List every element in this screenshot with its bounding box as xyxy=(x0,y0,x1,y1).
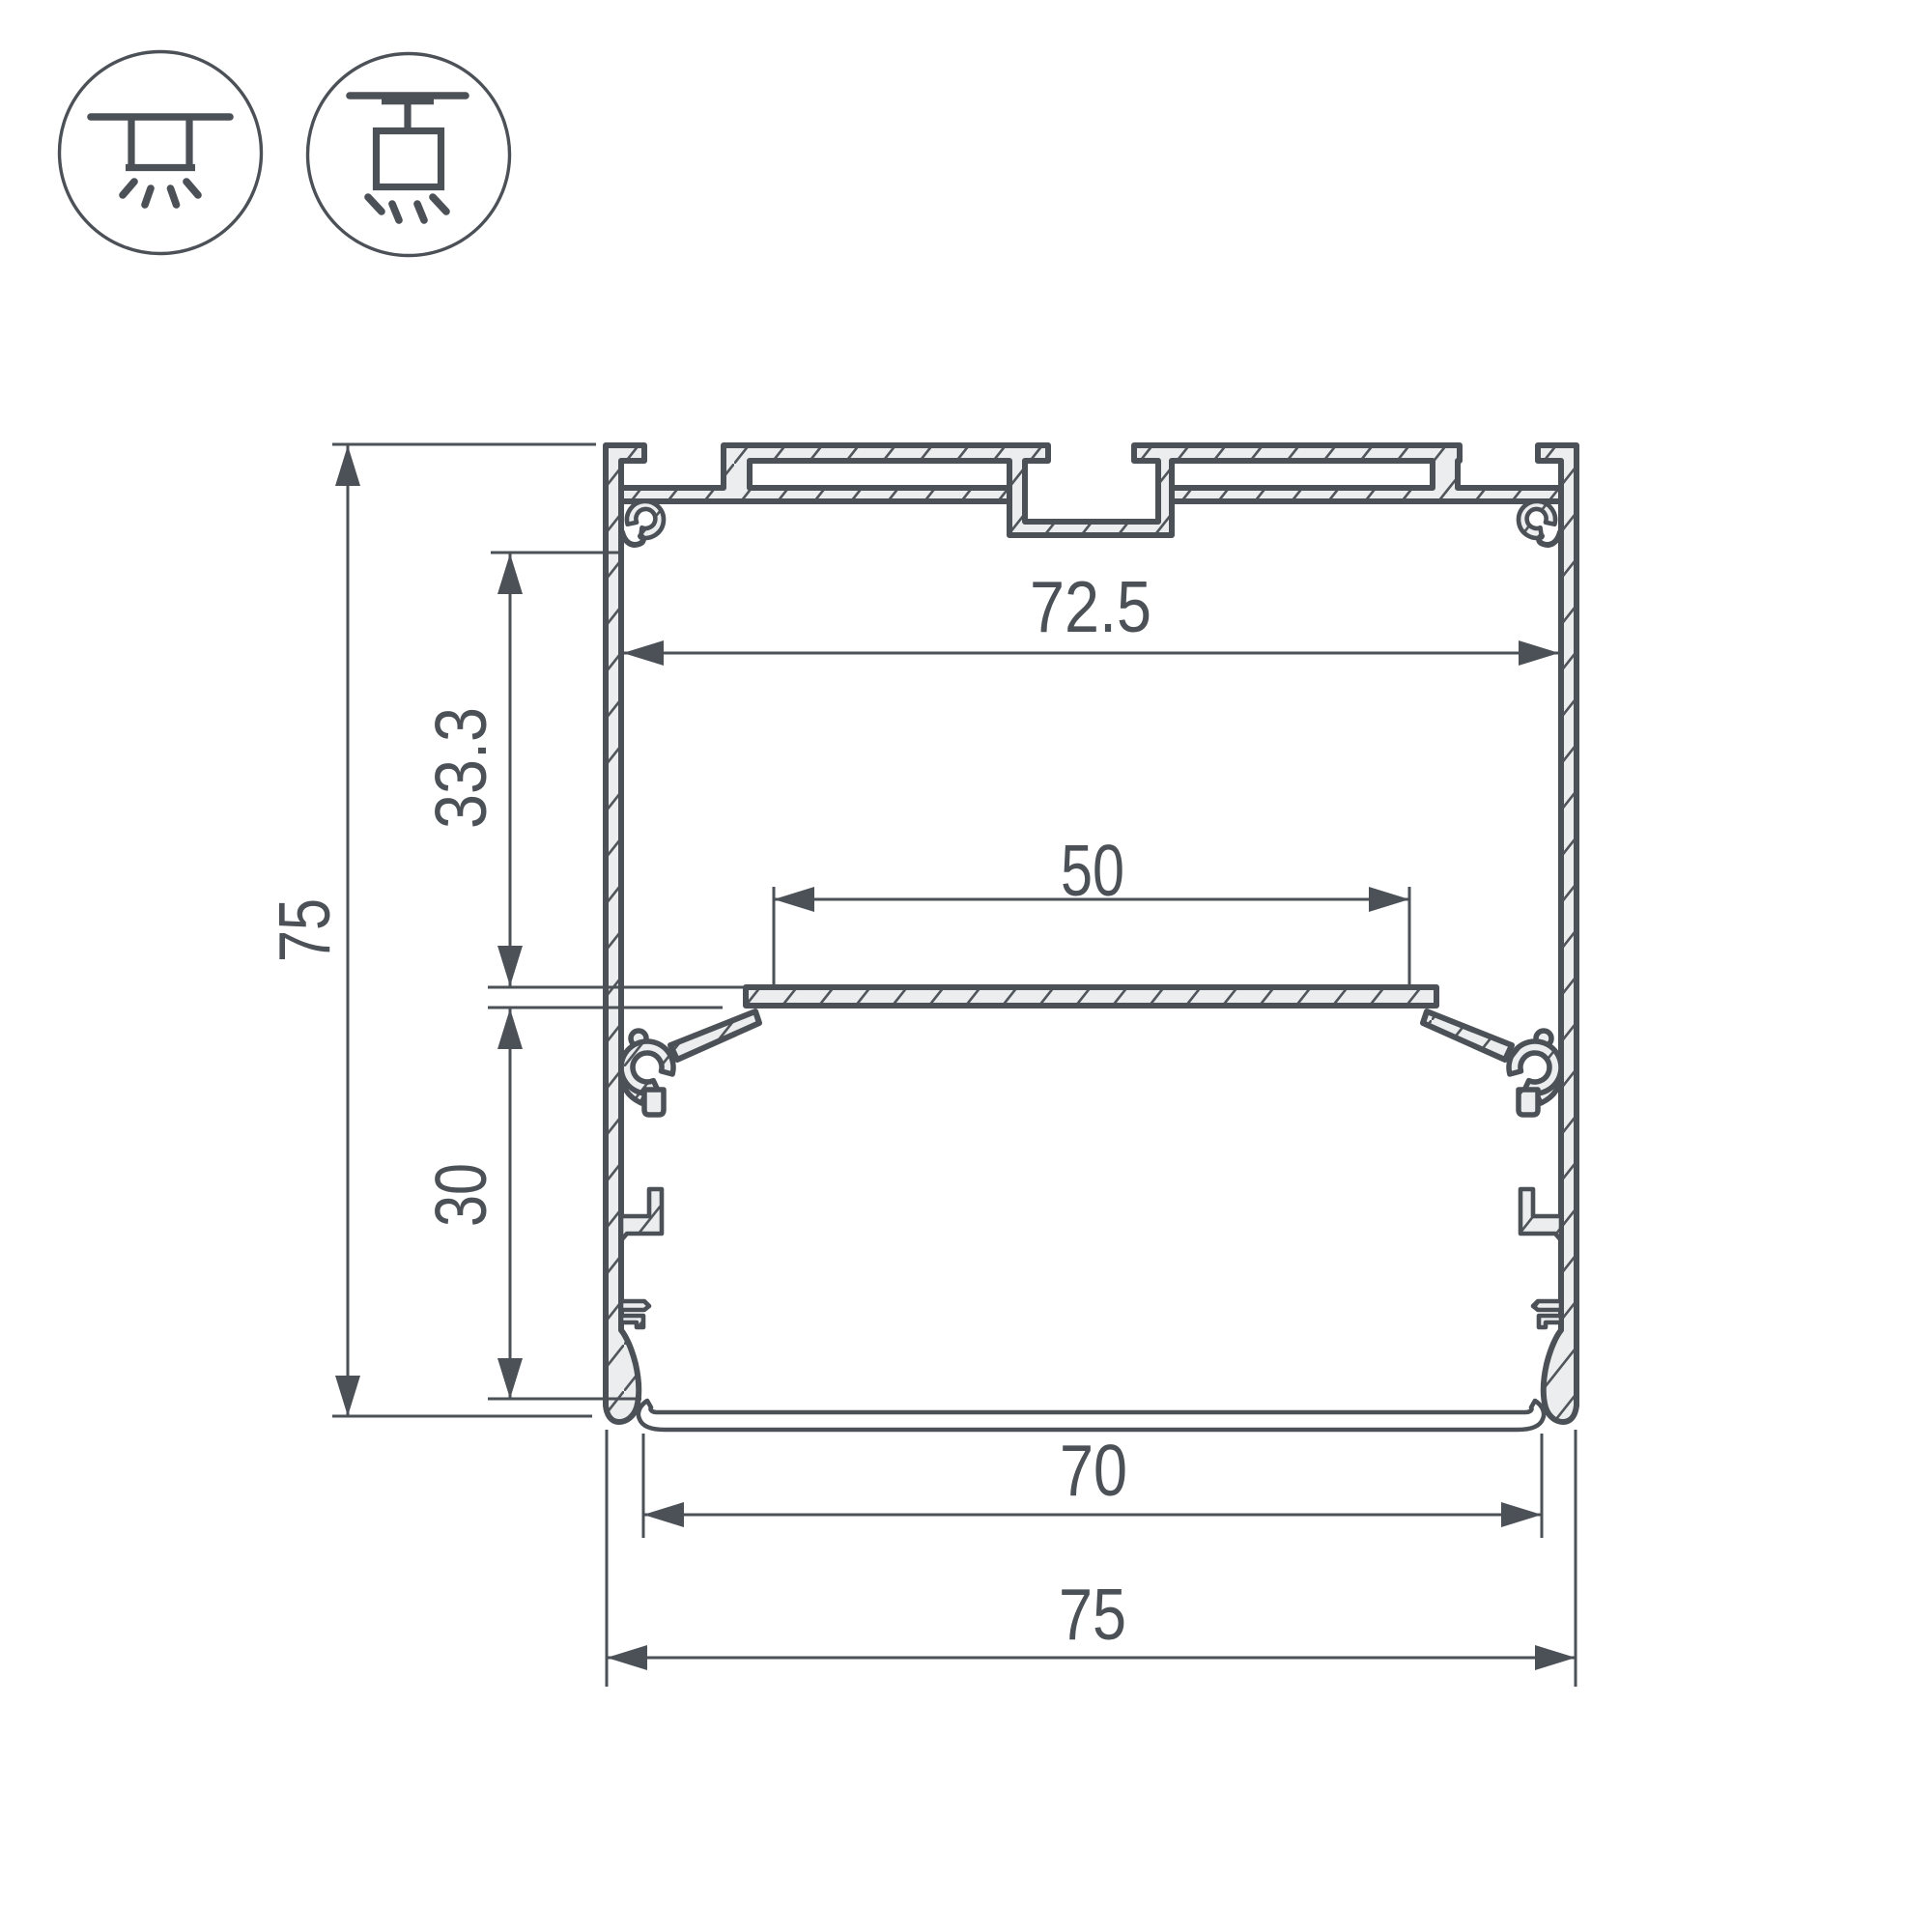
svg-text:75: 75 xyxy=(1059,1574,1126,1655)
svg-text:75: 75 xyxy=(264,898,345,962)
svg-text:70: 70 xyxy=(1060,1430,1127,1511)
svg-text:30: 30 xyxy=(420,1163,501,1227)
svg-text:72.5: 72.5 xyxy=(1030,566,1151,647)
svg-text:50: 50 xyxy=(1061,830,1124,911)
svg-text:33.3: 33.3 xyxy=(420,707,501,829)
